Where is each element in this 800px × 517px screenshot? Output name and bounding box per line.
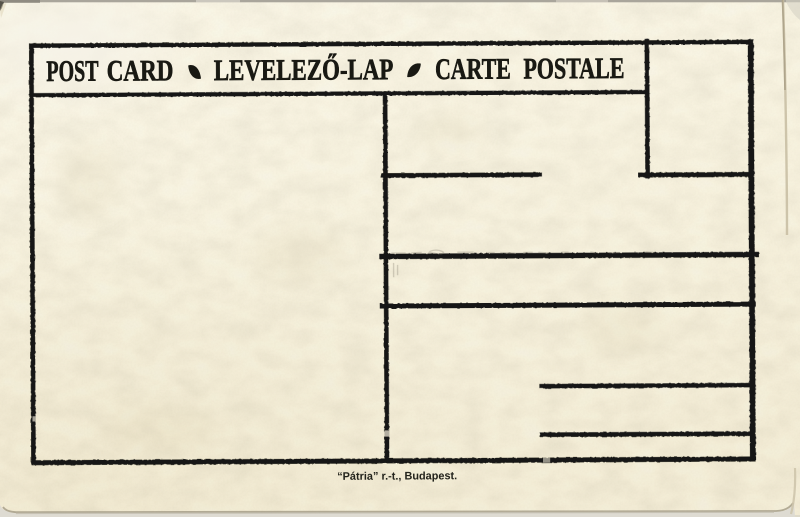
svg-text:LEVELEZŐ-LAP: LEVELEZŐ-LAP — [214, 53, 394, 87]
svg-text:CARTE: CARTE — [435, 53, 511, 86]
svg-text:POST: POST — [46, 55, 98, 88]
svg-text:CARD: CARD — [107, 54, 174, 87]
svg-text:“Pátria” r.-t., Budapest.: “Pátria” r.-t., Budapest. — [337, 470, 457, 483]
svg-text:POSTALE: POSTALE — [523, 52, 624, 86]
